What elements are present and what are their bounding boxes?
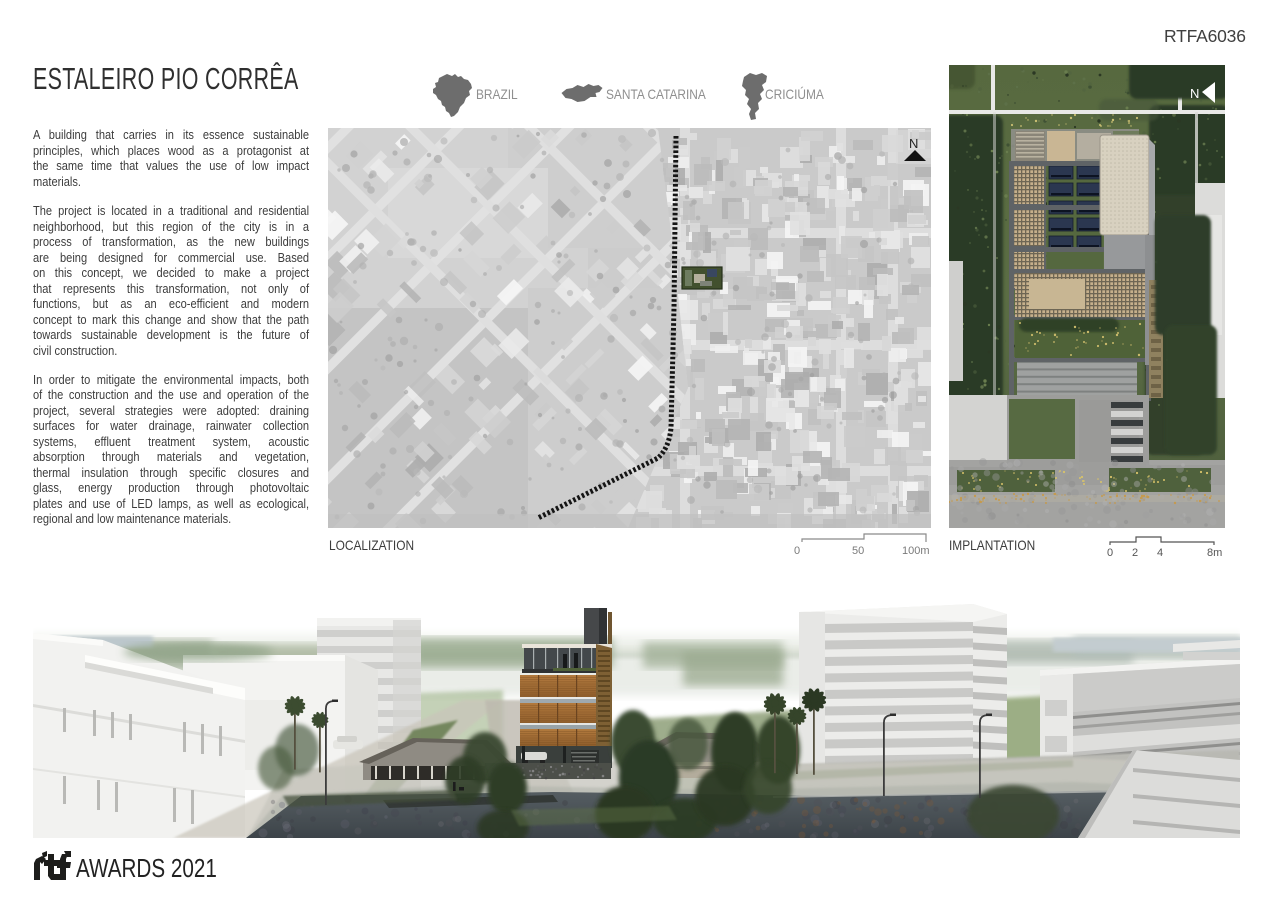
svg-text:N: N — [1190, 86, 1199, 101]
svg-text:100m: 100m — [902, 545, 930, 557]
svg-text:0: 0 — [1107, 547, 1113, 558]
svg-text:4: 4 — [1157, 547, 1163, 558]
svg-text:N: N — [909, 136, 918, 151]
svg-text:50: 50 — [852, 545, 864, 557]
svg-text:0: 0 — [794, 545, 800, 557]
svg-text:8m: 8m — [1207, 547, 1222, 558]
svg-text:2: 2 — [1132, 547, 1138, 558]
